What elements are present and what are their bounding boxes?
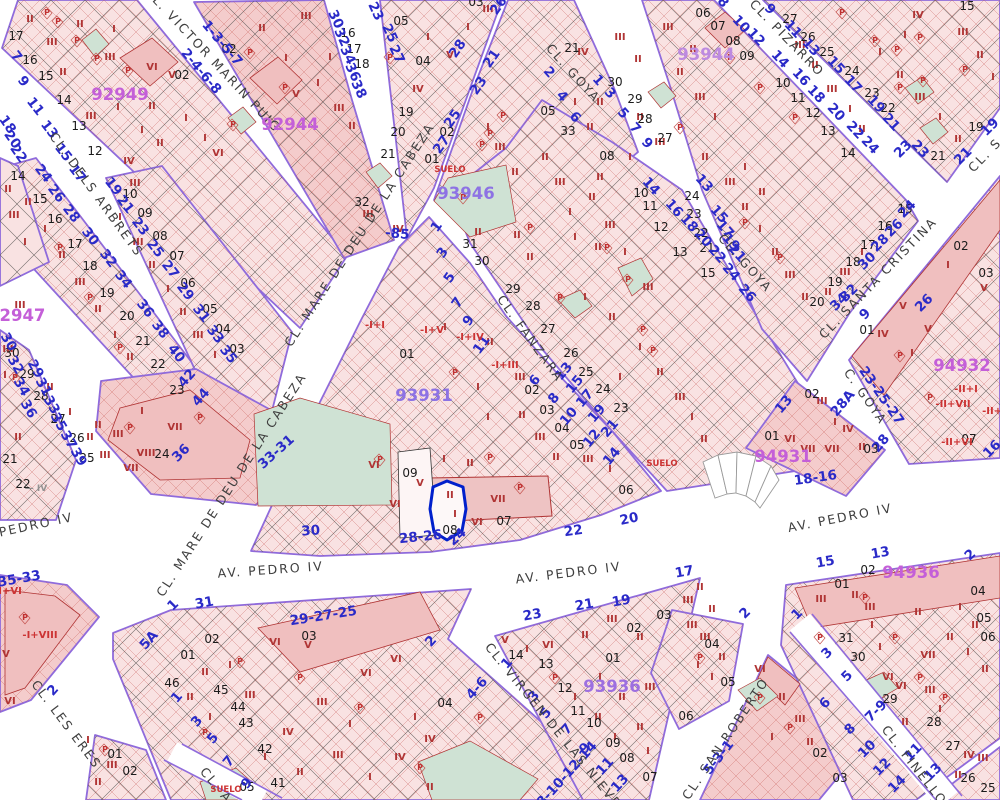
svg-text:I: I <box>442 454 446 465</box>
svg-text:II: II <box>258 23 265 34</box>
svg-text:II: II <box>801 292 808 303</box>
svg-text:30: 30 <box>850 650 865 664</box>
svg-text:P: P <box>962 65 968 74</box>
svg-text:II: II <box>700 434 707 445</box>
svg-text:I: I <box>758 224 762 235</box>
svg-text:09: 09 <box>402 466 417 480</box>
svg-text:I: I <box>966 647 970 658</box>
svg-text:24: 24 <box>595 382 610 396</box>
svg-text:P: P <box>357 703 363 712</box>
svg-text:III: III <box>300 11 311 22</box>
svg-text:I: I <box>910 348 914 359</box>
svg-text:II: II <box>914 607 921 618</box>
svg-text:II: II <box>771 247 778 258</box>
svg-text:01: 01 <box>764 429 779 443</box>
svg-text:VI: VI <box>269 637 280 648</box>
svg-text:02: 02 <box>174 68 189 82</box>
svg-text:17: 17 <box>674 563 695 582</box>
svg-text:P: P <box>87 293 93 302</box>
svg-text:9: 9 <box>14 73 32 90</box>
svg-text:2: 2 <box>736 604 754 622</box>
svg-text:P: P <box>487 453 493 462</box>
svg-text:P: P <box>757 83 763 92</box>
svg-text:P: P <box>282 83 288 92</box>
svg-text:II: II <box>466 458 473 469</box>
svg-text:VI: VI <box>368 460 379 471</box>
svg-text:IV: IV <box>282 727 294 738</box>
svg-text:93946: 93946 <box>437 184 494 203</box>
svg-text:III: III <box>606 614 617 625</box>
svg-text:VI: VI <box>895 681 906 692</box>
svg-text:II: II <box>608 312 615 323</box>
svg-text:10: 10 <box>775 76 790 90</box>
svg-text:26: 26 <box>960 771 975 785</box>
svg-text:21: 21 <box>574 596 595 615</box>
svg-text:03: 03 <box>539 403 554 417</box>
svg-text:II: II <box>186 692 193 703</box>
svg-text:-II+V: -II+V <box>982 406 1000 417</box>
svg-text:II: II <box>718 652 725 663</box>
svg-text:I: I <box>958 602 962 613</box>
svg-text:I: I <box>638 342 642 353</box>
svg-text:05: 05 <box>540 104 555 118</box>
svg-text:VII: VII <box>167 422 182 433</box>
svg-text:17: 17 <box>67 237 82 251</box>
svg-text:II: II <box>708 604 715 615</box>
svg-text:II: II <box>59 67 66 78</box>
svg-text:I: I <box>68 407 72 418</box>
svg-text:III: III <box>682 595 693 606</box>
svg-text:II: II <box>426 782 433 793</box>
svg-text:04: 04 <box>415 54 430 68</box>
svg-text:II: II <box>596 172 603 183</box>
svg-text:I: I <box>413 712 417 723</box>
svg-text:17: 17 <box>8 29 23 43</box>
svg-text:I: I <box>770 732 774 743</box>
svg-text:II: II <box>446 490 453 501</box>
svg-text:9: 9 <box>638 134 656 152</box>
svg-text:II: II <box>901 717 908 728</box>
svg-text:27: 27 <box>540 322 555 336</box>
svg-text:I: I <box>525 644 529 655</box>
svg-text:VII: VII <box>920 650 935 661</box>
svg-text:P: P <box>792 113 798 122</box>
svg-text:I: I <box>623 247 627 258</box>
svg-text:V: V <box>899 301 907 312</box>
svg-text:III: III <box>662 22 673 33</box>
svg-text:I: I <box>23 237 27 248</box>
svg-text:I: I <box>328 52 332 63</box>
svg-text:I: I <box>938 704 942 715</box>
svg-text:II: II <box>126 352 133 363</box>
svg-text:P: P <box>742 218 748 227</box>
svg-text:01: 01 <box>399 347 414 361</box>
svg-text:II: II <box>946 632 953 643</box>
svg-text:IV: IV <box>963 750 975 761</box>
svg-text:III: III <box>333 103 344 114</box>
svg-text:P: P <box>127 423 133 432</box>
svg-text:II: II <box>976 50 983 61</box>
svg-text:03: 03 <box>832 771 847 785</box>
svg-text:42: 42 <box>257 742 272 756</box>
svg-text:II: II <box>636 722 643 733</box>
svg-text:IV: IV <box>842 424 854 435</box>
svg-text:19: 19 <box>611 592 632 611</box>
svg-text:02: 02 <box>122 764 137 778</box>
svg-text:VII: VII <box>123 463 138 474</box>
svg-text:12: 12 <box>653 220 668 234</box>
svg-text:II: II <box>513 230 520 241</box>
svg-text:-I+VI: -I+VI <box>0 586 22 597</box>
svg-text:02: 02 <box>204 632 219 646</box>
svg-text:P: P <box>917 673 923 682</box>
svg-text:VI: VI <box>882 672 893 683</box>
svg-text:SUELO: SUELO <box>434 165 465 175</box>
svg-text:23: 23 <box>613 401 628 415</box>
svg-text:III: III <box>99 450 110 461</box>
svg-text:I: I <box>568 207 572 218</box>
svg-text:I: I <box>228 660 232 671</box>
svg-text:III: III <box>977 753 988 764</box>
svg-text:-85: -85 <box>385 225 411 243</box>
svg-text:I: I <box>710 672 714 683</box>
svg-text:V: V <box>924 324 932 335</box>
svg-text:15: 15 <box>700 266 715 280</box>
svg-text:01: 01 <box>605 651 620 665</box>
svg-text:41: 41 <box>270 776 285 790</box>
svg-text:III: III <box>914 92 925 103</box>
svg-text:22: 22 <box>150 357 165 371</box>
svg-text:VIII: VIII <box>137 448 156 459</box>
svg-text:P: P <box>477 713 483 722</box>
svg-text:02: 02 <box>812 746 827 760</box>
svg-text:-II+I: -II+I <box>954 384 978 395</box>
svg-text:25: 25 <box>578 365 593 379</box>
svg-text:-I+I: -I+I <box>365 320 385 331</box>
svg-text:13: 13 <box>71 119 86 133</box>
svg-text:II: II <box>541 152 548 163</box>
svg-text:93936: 93936 <box>583 677 640 696</box>
svg-text:13: 13 <box>820 124 835 138</box>
svg-text:VI: VI <box>146 62 157 73</box>
svg-text:I: I <box>573 692 577 703</box>
svg-text:III: III <box>784 270 795 281</box>
svg-text:III: III <box>694 92 705 103</box>
svg-text:II: II <box>94 777 101 788</box>
svg-text:P: P <box>892 633 898 642</box>
svg-text:III: III <box>815 594 826 605</box>
svg-text:SUELO: SUELO <box>646 459 677 469</box>
map-canvas[interactable]: PPPPPPPPPPPPPPPPPPPPPPPPPPPPPPPPPPPPPPPP… <box>0 0 1000 800</box>
svg-text:III: III <box>316 697 327 708</box>
svg-text:24: 24 <box>154 447 169 461</box>
svg-text:23: 23 <box>522 606 543 625</box>
svg-text:I: I <box>112 24 116 35</box>
svg-text:III: III <box>826 84 837 95</box>
svg-text:I: I <box>573 97 577 108</box>
svg-text:-I+IV: -I+IV <box>456 332 484 343</box>
svg-text:P: P <box>55 17 61 26</box>
svg-text:II: II <box>696 582 703 593</box>
svg-text:II: II <box>94 304 101 315</box>
svg-text:14: 14 <box>10 169 25 183</box>
svg-text:P: P <box>297 673 303 682</box>
svg-text:12: 12 <box>805 106 820 120</box>
svg-text:III: III <box>924 685 935 696</box>
svg-text:44: 44 <box>230 700 245 714</box>
svg-text:20: 20 <box>618 509 640 529</box>
svg-text:III: III <box>74 277 85 288</box>
svg-text:92944: 92944 <box>261 115 318 134</box>
svg-text:10: 10 <box>586 716 601 730</box>
svg-text:02: 02 <box>860 563 875 577</box>
svg-text:P: P <box>787 723 793 732</box>
svg-text:III: III <box>644 682 655 693</box>
svg-text:P: P <box>452 368 458 377</box>
svg-text:16: 16 <box>47 212 62 226</box>
svg-text:11: 11 <box>570 704 585 718</box>
svg-text:V: V <box>501 635 509 646</box>
svg-text:II: II <box>148 260 155 271</box>
svg-text:AV. PEDRO IV: AV. PEDRO IV <box>515 559 622 587</box>
svg-text:III: III <box>332 750 343 761</box>
svg-text:30: 30 <box>301 522 321 539</box>
svg-text:43: 43 <box>238 716 253 730</box>
svg-text:19: 19 <box>99 286 114 300</box>
svg-text:05: 05 <box>720 675 735 689</box>
svg-text:I: I <box>348 719 352 730</box>
svg-text:07: 07 <box>496 514 511 528</box>
svg-text:VI: VI <box>542 640 553 651</box>
gray-dashed-labels: — IV <box>25 484 47 494</box>
svg-text:III: III <box>192 330 203 341</box>
svg-text:II: II <box>741 202 748 213</box>
svg-text:-I+III: -I+III <box>491 360 518 371</box>
svg-text:28: 28 <box>525 299 540 313</box>
svg-text:I: I <box>368 772 372 783</box>
svg-text:P: P <box>894 45 900 54</box>
svg-text:P: P <box>640 325 646 334</box>
svg-text:19: 19 <box>827 275 842 289</box>
svg-text:— IV: — IV <box>25 484 47 494</box>
svg-text:II: II <box>778 692 785 703</box>
svg-text:22: 22 <box>563 522 584 540</box>
svg-text:31: 31 <box>462 237 477 251</box>
svg-text:12: 12 <box>87 144 102 158</box>
svg-text:II: II <box>981 664 988 675</box>
svg-text:II: II <box>656 367 663 378</box>
svg-text:P: P <box>862 593 868 602</box>
svg-text:26: 26 <box>563 346 578 360</box>
svg-text:11: 11 <box>642 199 657 213</box>
svg-text:07: 07 <box>710 19 725 33</box>
svg-text:09: 09 <box>739 49 754 63</box>
svg-text:VI: VI <box>389 499 400 510</box>
svg-text:I: I <box>618 372 622 383</box>
svg-text:21: 21 <box>380 147 395 161</box>
svg-text:III: III <box>494 142 505 153</box>
svg-text:I: I <box>486 412 490 423</box>
svg-text:93931: 93931 <box>395 386 452 405</box>
svg-text:II: II <box>588 192 595 203</box>
svg-text:III: III <box>582 454 593 465</box>
svg-text:07: 07 <box>642 770 657 784</box>
svg-text:IV: IV <box>394 752 406 763</box>
svg-text:I: I <box>426 32 430 43</box>
svg-text:II: II <box>518 410 525 421</box>
svg-text:09: 09 <box>605 736 620 750</box>
svg-text:VI: VI <box>390 654 401 665</box>
svg-text:P: P <box>625 275 631 284</box>
svg-text:P: P <box>839 8 845 17</box>
svg-text:I: I <box>696 660 700 671</box>
svg-text:II: II <box>76 19 83 30</box>
svg-text:II: II <box>552 452 559 463</box>
svg-text:20: 20 <box>119 309 134 323</box>
svg-text:I: I <box>573 232 577 243</box>
svg-text:II: II <box>26 14 33 25</box>
svg-text:12: 12 <box>557 681 572 695</box>
svg-text:II: II <box>296 767 303 778</box>
svg-text:P: P <box>927 393 933 402</box>
svg-text:-II+VI: -II+VI <box>941 437 972 448</box>
svg-text:P: P <box>517 483 523 492</box>
svg-text:P: P <box>230 120 236 129</box>
svg-text:08: 08 <box>619 751 634 765</box>
svg-text:03: 03 <box>468 0 483 9</box>
svg-text:20: 20 <box>390 125 405 139</box>
svg-text:13: 13 <box>538 657 553 671</box>
svg-text:I: I <box>938 112 942 123</box>
svg-text:I: I <box>848 104 852 115</box>
svg-text:I: I <box>583 292 587 303</box>
svg-text:II: II <box>758 187 765 198</box>
svg-text:P: P <box>604 243 610 252</box>
svg-text:08: 08 <box>599 149 614 163</box>
svg-text:01: 01 <box>859 323 874 337</box>
svg-text:I: I <box>184 113 188 124</box>
svg-text:II: II <box>851 590 858 601</box>
svg-text:31: 31 <box>194 594 215 613</box>
svg-text:92949: 92949 <box>91 85 148 104</box>
svg-text:P: P <box>237 657 243 666</box>
svg-text:11: 11 <box>23 94 47 119</box>
svg-text:03: 03 <box>978 266 993 280</box>
svg-text:45: 45 <box>213 683 228 697</box>
svg-text:II: II <box>24 197 31 208</box>
svg-text:I: I <box>113 330 117 341</box>
svg-text:III: III <box>8 210 19 221</box>
svg-text:VI: VI <box>4 696 15 707</box>
svg-text:P: P <box>872 36 878 45</box>
svg-text:I: I <box>284 53 288 64</box>
svg-text:I: I <box>870 620 874 631</box>
svg-text:I: I <box>903 30 907 41</box>
svg-text:AV. PEDRO IV: AV. PEDRO IV <box>217 558 324 580</box>
svg-text:III: III <box>112 429 123 440</box>
svg-text:02: 02 <box>804 387 819 401</box>
svg-text:21: 21 <box>930 149 945 163</box>
svg-text:I: I <box>3 370 7 381</box>
svg-text:III: III <box>514 372 525 383</box>
svg-text:I: I <box>203 133 207 144</box>
svg-text:04: 04 <box>970 584 985 598</box>
svg-text:III: III <box>46 37 57 48</box>
svg-text:III: III <box>85 111 96 122</box>
svg-text:94936: 94936 <box>882 563 939 582</box>
svg-text:I: I <box>208 712 212 723</box>
svg-text:14: 14 <box>840 146 855 160</box>
svg-text:I: I <box>991 72 995 83</box>
svg-text:II: II <box>701 152 708 163</box>
svg-text:01: 01 <box>834 577 849 591</box>
svg-text:94932: 94932 <box>933 356 990 375</box>
svg-text:III: III <box>614 32 625 43</box>
svg-text:P: P <box>650 346 656 355</box>
svg-text:II: II <box>94 420 101 431</box>
svg-text:P: P <box>527 223 533 232</box>
svg-text:P: P <box>94 54 100 63</box>
svg-text:II: II <box>156 138 163 149</box>
svg-text:I: I <box>43 224 47 235</box>
svg-text:IV: IV <box>877 329 889 340</box>
svg-text:P: P <box>942 693 948 702</box>
svg-text:P: P <box>500 111 506 120</box>
svg-text:VII: VII <box>824 444 839 455</box>
svg-text:VI: VI <box>212 148 223 159</box>
svg-text:III: III <box>104 52 115 63</box>
svg-text:P: P <box>247 48 253 57</box>
svg-text:II: II <box>201 667 208 678</box>
svg-text:II: II <box>179 307 186 318</box>
svg-text:13: 13 <box>672 245 687 259</box>
svg-text:P: P <box>897 83 903 92</box>
svg-text:15: 15 <box>38 69 53 83</box>
svg-text:II: II <box>526 252 533 263</box>
svg-text:P: P <box>125 66 131 75</box>
svg-text:-I+V: -I+V <box>420 325 444 336</box>
svg-text:I: I <box>833 417 837 428</box>
svg-text:30: 30 <box>474 254 489 268</box>
svg-text:V: V <box>980 283 988 294</box>
svg-text:94931: 94931 <box>754 447 811 466</box>
svg-text:II: II <box>14 432 21 443</box>
svg-text:II: II <box>4 184 11 195</box>
svg-text:P: P <box>479 140 485 149</box>
svg-text:01: 01 <box>180 648 195 662</box>
svg-text:III: III <box>244 690 255 701</box>
svg-text:92947: 92947 <box>0 306 45 325</box>
svg-text:I: I <box>690 412 694 423</box>
svg-text:31: 31 <box>838 631 853 645</box>
svg-text:CL. LES ERES: CL. LES ERES <box>28 677 104 771</box>
svg-text:11: 11 <box>790 91 805 105</box>
svg-text:V: V <box>2 649 10 660</box>
svg-text:II: II <box>511 167 518 178</box>
svg-text:III: III <box>554 177 565 188</box>
svg-text:P: P <box>417 763 423 772</box>
cadastral-map-viewport[interactable]: PPPPPPPPPPPPPPPPPPPPPPPPPPPPPPPPPPPPPPPP… <box>0 0 1000 800</box>
svg-text:I: I <box>743 162 747 173</box>
svg-text:27: 27 <box>657 131 672 145</box>
svg-text:15: 15 <box>815 553 836 572</box>
svg-text:04: 04 <box>704 637 719 651</box>
svg-text:P: P <box>917 33 923 42</box>
svg-text:-II+VII: -II+VII <box>935 399 970 410</box>
svg-text:14: 14 <box>56 93 71 107</box>
svg-text:P: P <box>897 351 903 360</box>
svg-text:20: 20 <box>809 295 824 309</box>
